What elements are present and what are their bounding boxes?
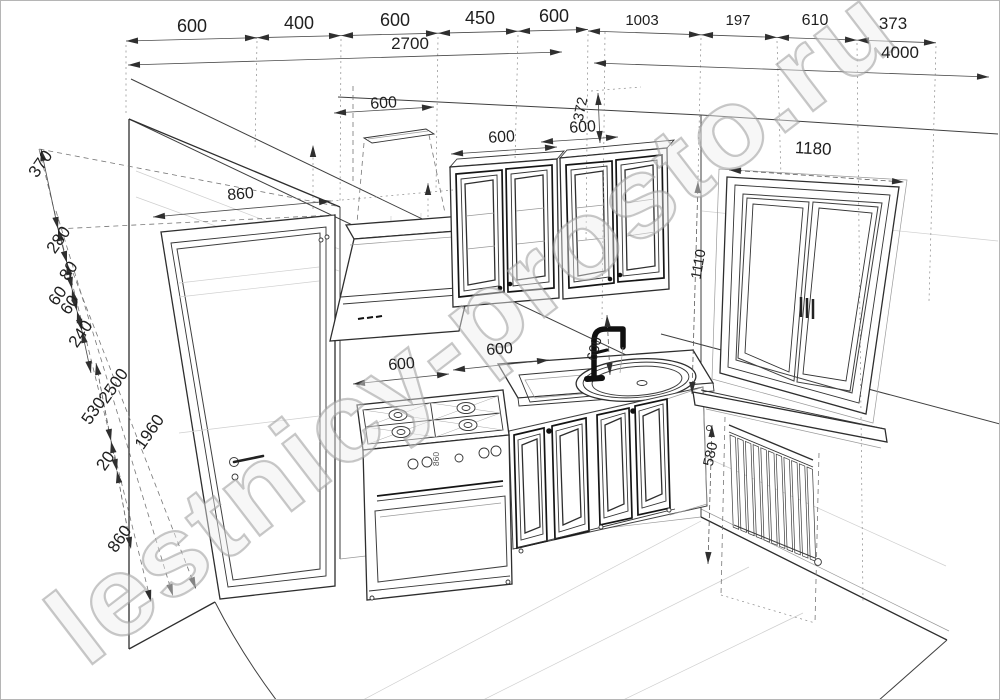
dim-wallcab1-600: 600 [488, 128, 516, 147]
base-cabinets [509, 387, 707, 553]
dim-window-1110: 1110 [689, 248, 710, 280]
dim-top-197: 197 [725, 12, 750, 29]
dim-left-240: 240 [65, 317, 97, 351]
window [693, 169, 907, 448]
radiator-fins [730, 435, 816, 561]
dim-left-20: 20 [92, 448, 118, 474]
dim-top-600b: 600 [380, 10, 410, 30]
ceiling-vent [353, 86, 445, 223]
dim-base-left-600: 600 [388, 355, 416, 374]
dim-top-1003: 1003 [625, 12, 658, 29]
dim-top-450: 450 [465, 8, 495, 28]
dim-top-600a: 600 [177, 16, 207, 36]
dim-base-mid-600: 600 [486, 340, 514, 359]
dim-top-610: 610 [802, 12, 829, 29]
dim-left-370: 370 [25, 147, 57, 181]
dim-total-4000: 4000 [881, 43, 919, 62]
stove-marking-860: 860 [431, 452, 441, 466]
dim-total-2700: 2700 [391, 34, 429, 53]
dim-left-1960: 1960 [131, 411, 168, 453]
blueprint-canvas: lestnicy-prosto.ru 600 400 600 450 600 2… [0, 0, 1000, 700]
dim-top-600c: 600 [539, 6, 569, 26]
dim-top-373: 373 [879, 14, 907, 33]
dim-window-1180: 1180 [795, 138, 833, 159]
dim-door-860: 860 [227, 185, 255, 204]
kitchen-drawing: lestnicy-prosto.ru 600 400 600 450 600 2… [1, 1, 1000, 700]
dim-left-80: 80 [55, 258, 81, 284]
dim-top-400: 400 [284, 13, 314, 33]
dim-left-280: 280 [43, 223, 75, 257]
